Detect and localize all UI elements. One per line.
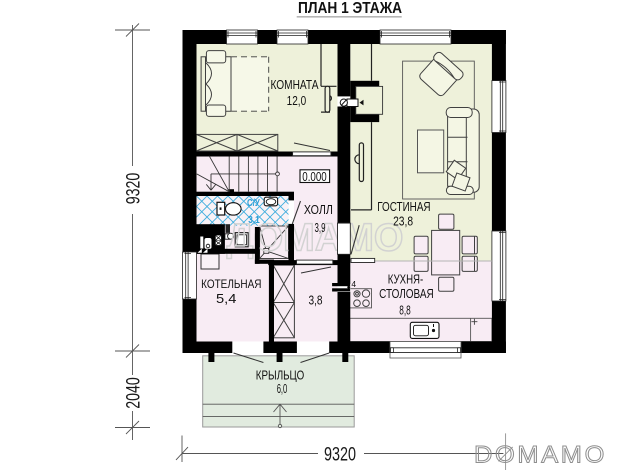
svg-text:КОМНАТА: КОМНАТА xyxy=(271,77,319,92)
svg-text:0.000: 0.000 xyxy=(302,170,327,184)
svg-text:23,8: 23,8 xyxy=(393,214,413,229)
svg-text:5,4: 5,4 xyxy=(216,291,236,306)
svg-text:9320: 9320 xyxy=(123,173,145,205)
svg-text:3,1: 3,1 xyxy=(248,214,260,226)
svg-text:12,0: 12,0 xyxy=(287,93,307,108)
svg-text:6,0: 6,0 xyxy=(277,381,288,396)
svg-text:3,9: 3,9 xyxy=(315,220,326,235)
svg-text:КОТЕЛЬНАЯ: КОТЕЛЬНАЯ xyxy=(201,278,261,291)
svg-text:4: 4 xyxy=(351,279,356,289)
svg-text:КУХНЯ-: КУХНЯ- xyxy=(388,272,424,287)
svg-text:ГОСТИНАЯ: ГОСТИНАЯ xyxy=(377,200,430,214)
svg-text:9320: 9320 xyxy=(324,444,356,466)
svg-text:ПЛАН 1 ЭТАЖА: ПЛАН 1 ЭТАЖА xyxy=(298,0,402,17)
svg-text:ХОЛЛ: ХОЛЛ xyxy=(304,202,333,217)
svg-text:DOMAMO: DOMAMO xyxy=(474,442,607,469)
svg-text:СТОЛОВАЯ: СТОЛОВАЯ xyxy=(379,286,434,301)
svg-text:С/У: С/У xyxy=(247,197,260,209)
svg-text:2040: 2040 xyxy=(123,377,145,409)
svg-text:8,8: 8,8 xyxy=(399,303,411,318)
svg-text:3,8: 3,8 xyxy=(308,293,322,308)
